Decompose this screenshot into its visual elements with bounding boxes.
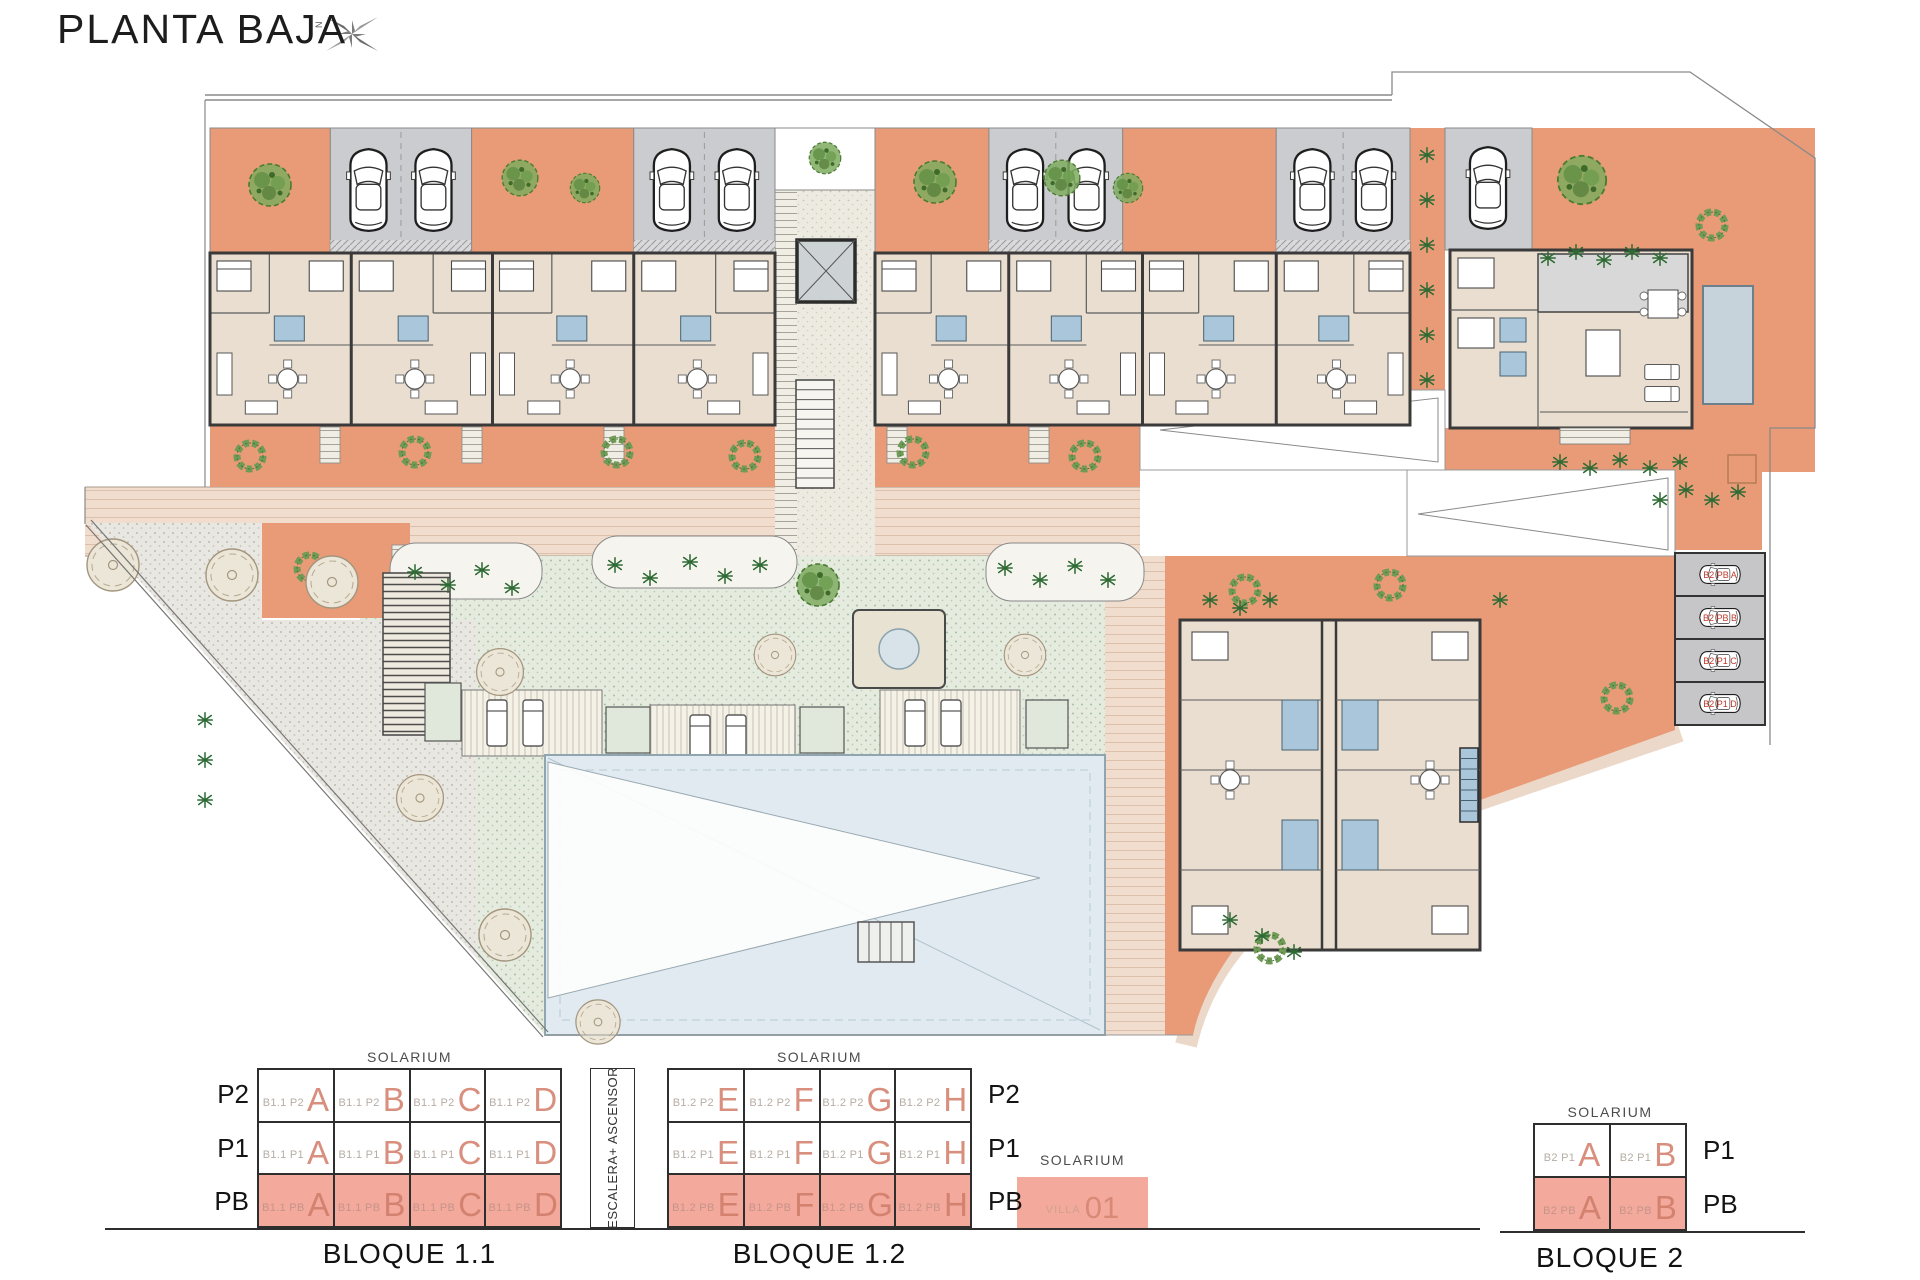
unit-cell-B1.2-PB-F: B1.2 PBF [744, 1174, 820, 1227]
unit-code: B1.1 P1 [263, 1150, 304, 1161]
unit-letter: E [717, 1140, 739, 1166]
unit-cell-B1.1-PB-A: B1.1 PBA [258, 1174, 334, 1227]
unit-code: B1.1 PB [262, 1203, 304, 1214]
unit-letter: C [458, 1140, 482, 1166]
unit-cell-B1.1-P1-A: B1.1 P1A [258, 1122, 334, 1175]
block-name-B1.2: BLOQUE 1.2 [667, 1238, 972, 1270]
unit-code: B2 PB [1619, 1206, 1652, 1217]
unit-cell-B1.1-P1-C: B1.1 P1C [410, 1122, 486, 1175]
unit-grid-B2: B2 P1AB2 P1BB2 PBAB2 PBB [1533, 1123, 1687, 1231]
unit-cell-B2-P1-B: B2 P1B [1610, 1124, 1686, 1177]
unit-cell-B1.1-PB-C: B1.1 PBC [410, 1174, 486, 1227]
stairs-elevator-label: ESCALERA+ ASCENSOR [605, 1067, 620, 1229]
unit-letter: D [534, 1192, 558, 1218]
unit-cell-B1.2-P1-H: B1.2 P1H [895, 1122, 971, 1175]
floor-label-B2-PB: PB [1703, 1177, 1747, 1231]
unit-cell-B1.2-PB-G: B1.2 PBG [820, 1174, 896, 1227]
unit-code: B1.1 P1 [489, 1150, 530, 1161]
unit-cell-B1.2-P1-E: B1.2 P1E [668, 1122, 744, 1175]
unit-cell-B1.2-P1-G: B1.2 P1G [820, 1122, 896, 1175]
villa-label: VILLA [1046, 1205, 1081, 1216]
planta-baja-page: { "header": { "title": "PLANTA BAJA", "c… [0, 0, 1920, 1280]
parking-stall-label-1: B2 PB A [1703, 570, 1737, 580]
unit-letter: A [1578, 1142, 1600, 1168]
unit-cell-B1.2-P2-F: B1.2 P2F [744, 1069, 820, 1122]
unit-letter: H [944, 1192, 968, 1218]
unit-code: B1.2 PB [672, 1203, 714, 1214]
unit-cell-B1.2-PB-H: B1.2 PBH [895, 1174, 971, 1227]
unit-code: B1.2 P1 [899, 1150, 940, 1161]
solarium-label-B1.2: SOLARIUM [667, 1049, 972, 1065]
unit-grid-B1.2: B1.2 P2EB1.2 P2FB1.2 P2GB1.2 P2HB1.2 P1E… [667, 1068, 972, 1228]
solarium-label-B2: SOLARIUM [1533, 1104, 1687, 1120]
unit-letter: D [533, 1087, 557, 1113]
parking-stall-label-4: B2 P1 D [1703, 699, 1737, 709]
unit-code: B1.2 P1 [749, 1150, 790, 1161]
unit-letter: G [867, 1140, 893, 1166]
unit-letter: A [1579, 1195, 1601, 1221]
unit-cell-B1.1-PB-D: B1.1 PBD [485, 1174, 561, 1227]
unit-letter: G [867, 1192, 893, 1218]
parking-stall-label-3: B2 P1 C [1703, 656, 1737, 666]
villa-solarium-label: SOLARIUM [1017, 1152, 1148, 1168]
unit-code: B1.2 P1 [673, 1150, 714, 1161]
unit-letter: C [458, 1192, 482, 1218]
unit-cell-B1.1-P2-D: B1.1 P2D [485, 1069, 561, 1122]
unit-code: B1.1 PB [413, 1203, 455, 1214]
unit-cell-B1.2-PB-E: B1.2 PBE [668, 1174, 744, 1227]
unit-letter: B [383, 1140, 405, 1166]
floor-label-B1.1-P2: P2 [205, 1068, 249, 1121]
unit-code: B1.2 PB [822, 1203, 864, 1214]
block-name-B2: BLOQUE 2 [1533, 1242, 1687, 1274]
unit-code: B2 PB [1543, 1206, 1576, 1217]
unit-code: B1.2 P2 [673, 1098, 714, 1109]
floor-labels-B1.1: P2P1PB [205, 1068, 249, 1228]
unit-letter: G [867, 1087, 893, 1113]
unit-cell-B1.1-P1-B: B1.1 P1B [334, 1122, 410, 1175]
unit-letter: A [307, 1087, 329, 1113]
floor-label-B1.2-PB: PB [988, 1175, 1032, 1228]
unit-code: B1.2 P2 [899, 1098, 940, 1109]
unit-letter: B [383, 1087, 405, 1113]
floor-label-B1.2-P2: P2 [988, 1068, 1032, 1121]
unit-code: B1.1 P2 [263, 1098, 304, 1109]
floor-label-B1.1-P1: P1 [205, 1121, 249, 1174]
villa-cell: VILLA 01 [1017, 1177, 1148, 1228]
unit-code: B1.2 P1 [822, 1150, 863, 1161]
unit-cell-B2-PB-A: B2 PBA [1534, 1177, 1610, 1230]
floor-label-B1.1-PB: PB [205, 1175, 249, 1228]
unit-code: B1.2 P2 [749, 1098, 790, 1109]
unit-cell-B1.1-P2-B: B1.1 P2B [334, 1069, 410, 1122]
unit-cell-B1.2-P2-E: B1.2 P2E [668, 1069, 744, 1122]
unit-code: B1.1 P2 [338, 1098, 379, 1109]
solarium-label-B1.1: SOLARIUM [257, 1049, 562, 1065]
unit-cell-B1.1-P1-D: B1.1 P1D [485, 1122, 561, 1175]
unit-letter: H [943, 1140, 967, 1166]
legend-baseline-1 [105, 1228, 1480, 1230]
unit-letter: B [1655, 1195, 1677, 1221]
unit-code: B1.2 P2 [822, 1098, 863, 1109]
unit-code: B1.1 PB [338, 1203, 380, 1214]
parking-stall-label-2: B2 PB B [1703, 613, 1737, 623]
unit-cell-B1.1-P2-A: B1.1 P2A [258, 1069, 334, 1122]
unit-code: B1.1 P1 [413, 1150, 454, 1161]
unit-code: B2 P1 [1544, 1153, 1575, 1164]
unit-letter: D [533, 1140, 557, 1166]
villa-number: 01 [1085, 1196, 1119, 1220]
stairs-elevator-column: ESCALERA+ ASCENSOR [590, 1068, 635, 1228]
unit-letter: E [718, 1192, 740, 1218]
floor-labels-B2: P1PB [1703, 1123, 1747, 1231]
unit-cell-B2-PB-B: B2 PBB [1610, 1177, 1686, 1230]
legend-baseline-2 [1500, 1231, 1805, 1233]
unit-code: B1.1 P1 [338, 1150, 379, 1161]
floor-labels-B1.2: P2P1PB [988, 1068, 1032, 1228]
unit-letter: C [458, 1087, 482, 1113]
unit-letter: F [794, 1192, 814, 1218]
unit-code: B1.1 P2 [489, 1098, 530, 1109]
block-name-B1.1: BLOQUE 1.1 [257, 1238, 562, 1270]
unit-letter: B [383, 1192, 405, 1218]
unit-cell-B1.2-P2-G: B1.2 P2G [820, 1069, 896, 1122]
unit-cell-B1.1-PB-B: B1.1 PBB [334, 1174, 410, 1227]
unit-letter: H [943, 1087, 967, 1113]
unit-code: B1.2 PB [898, 1203, 940, 1214]
unit-letter: B [1654, 1142, 1676, 1168]
unit-cell-B1.2-P2-H: B1.2 P2H [895, 1069, 971, 1122]
unit-letter: E [717, 1087, 739, 1113]
unit-code: B1.1 PB [488, 1203, 530, 1214]
unit-grid-B1.1: B1.1 P2AB1.1 P2BB1.1 P2CB1.1 P2DB1.1 P1A… [257, 1068, 562, 1228]
unit-letter: A [308, 1192, 330, 1218]
unit-code: B2 P1 [1620, 1153, 1651, 1164]
unit-cell-B1.1-P2-C: B1.1 P2C [410, 1069, 486, 1122]
unit-code: B1.1 P2 [413, 1098, 454, 1109]
unit-code: B1.2 PB [749, 1203, 791, 1214]
floor-label-B2-P1: P1 [1703, 1123, 1747, 1177]
unit-letter: F [794, 1087, 814, 1113]
unit-cell-B2-P1-A: B2 P1A [1534, 1124, 1610, 1177]
unit-letter: A [307, 1140, 329, 1166]
unit-letter: F [794, 1140, 814, 1166]
unit-cell-B1.2-P1-F: B1.2 P1F [744, 1122, 820, 1175]
page-title: PLANTA BAJA [57, 6, 347, 53]
floor-label-B1.2-P1: P1 [988, 1121, 1032, 1174]
